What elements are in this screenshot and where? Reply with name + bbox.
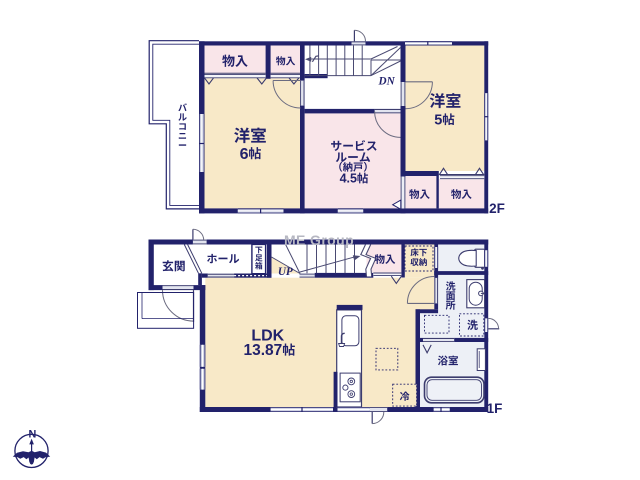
svg-text:N: N bbox=[28, 429, 36, 441]
svg-text:6: 6 bbox=[240, 146, 249, 163]
svg-text:13.87: 13.87 bbox=[244, 342, 283, 359]
svg-text:1F: 1F bbox=[487, 401, 503, 416]
svg-text:DN: DN bbox=[378, 76, 396, 88]
svg-text:5: 5 bbox=[434, 112, 442, 128]
svg-text:UP: UP bbox=[278, 266, 293, 278]
svg-text:ME Group: ME Group bbox=[284, 232, 354, 248]
svg-text:2F: 2F bbox=[489, 201, 505, 216]
svg-text:4.5: 4.5 bbox=[340, 172, 357, 186]
